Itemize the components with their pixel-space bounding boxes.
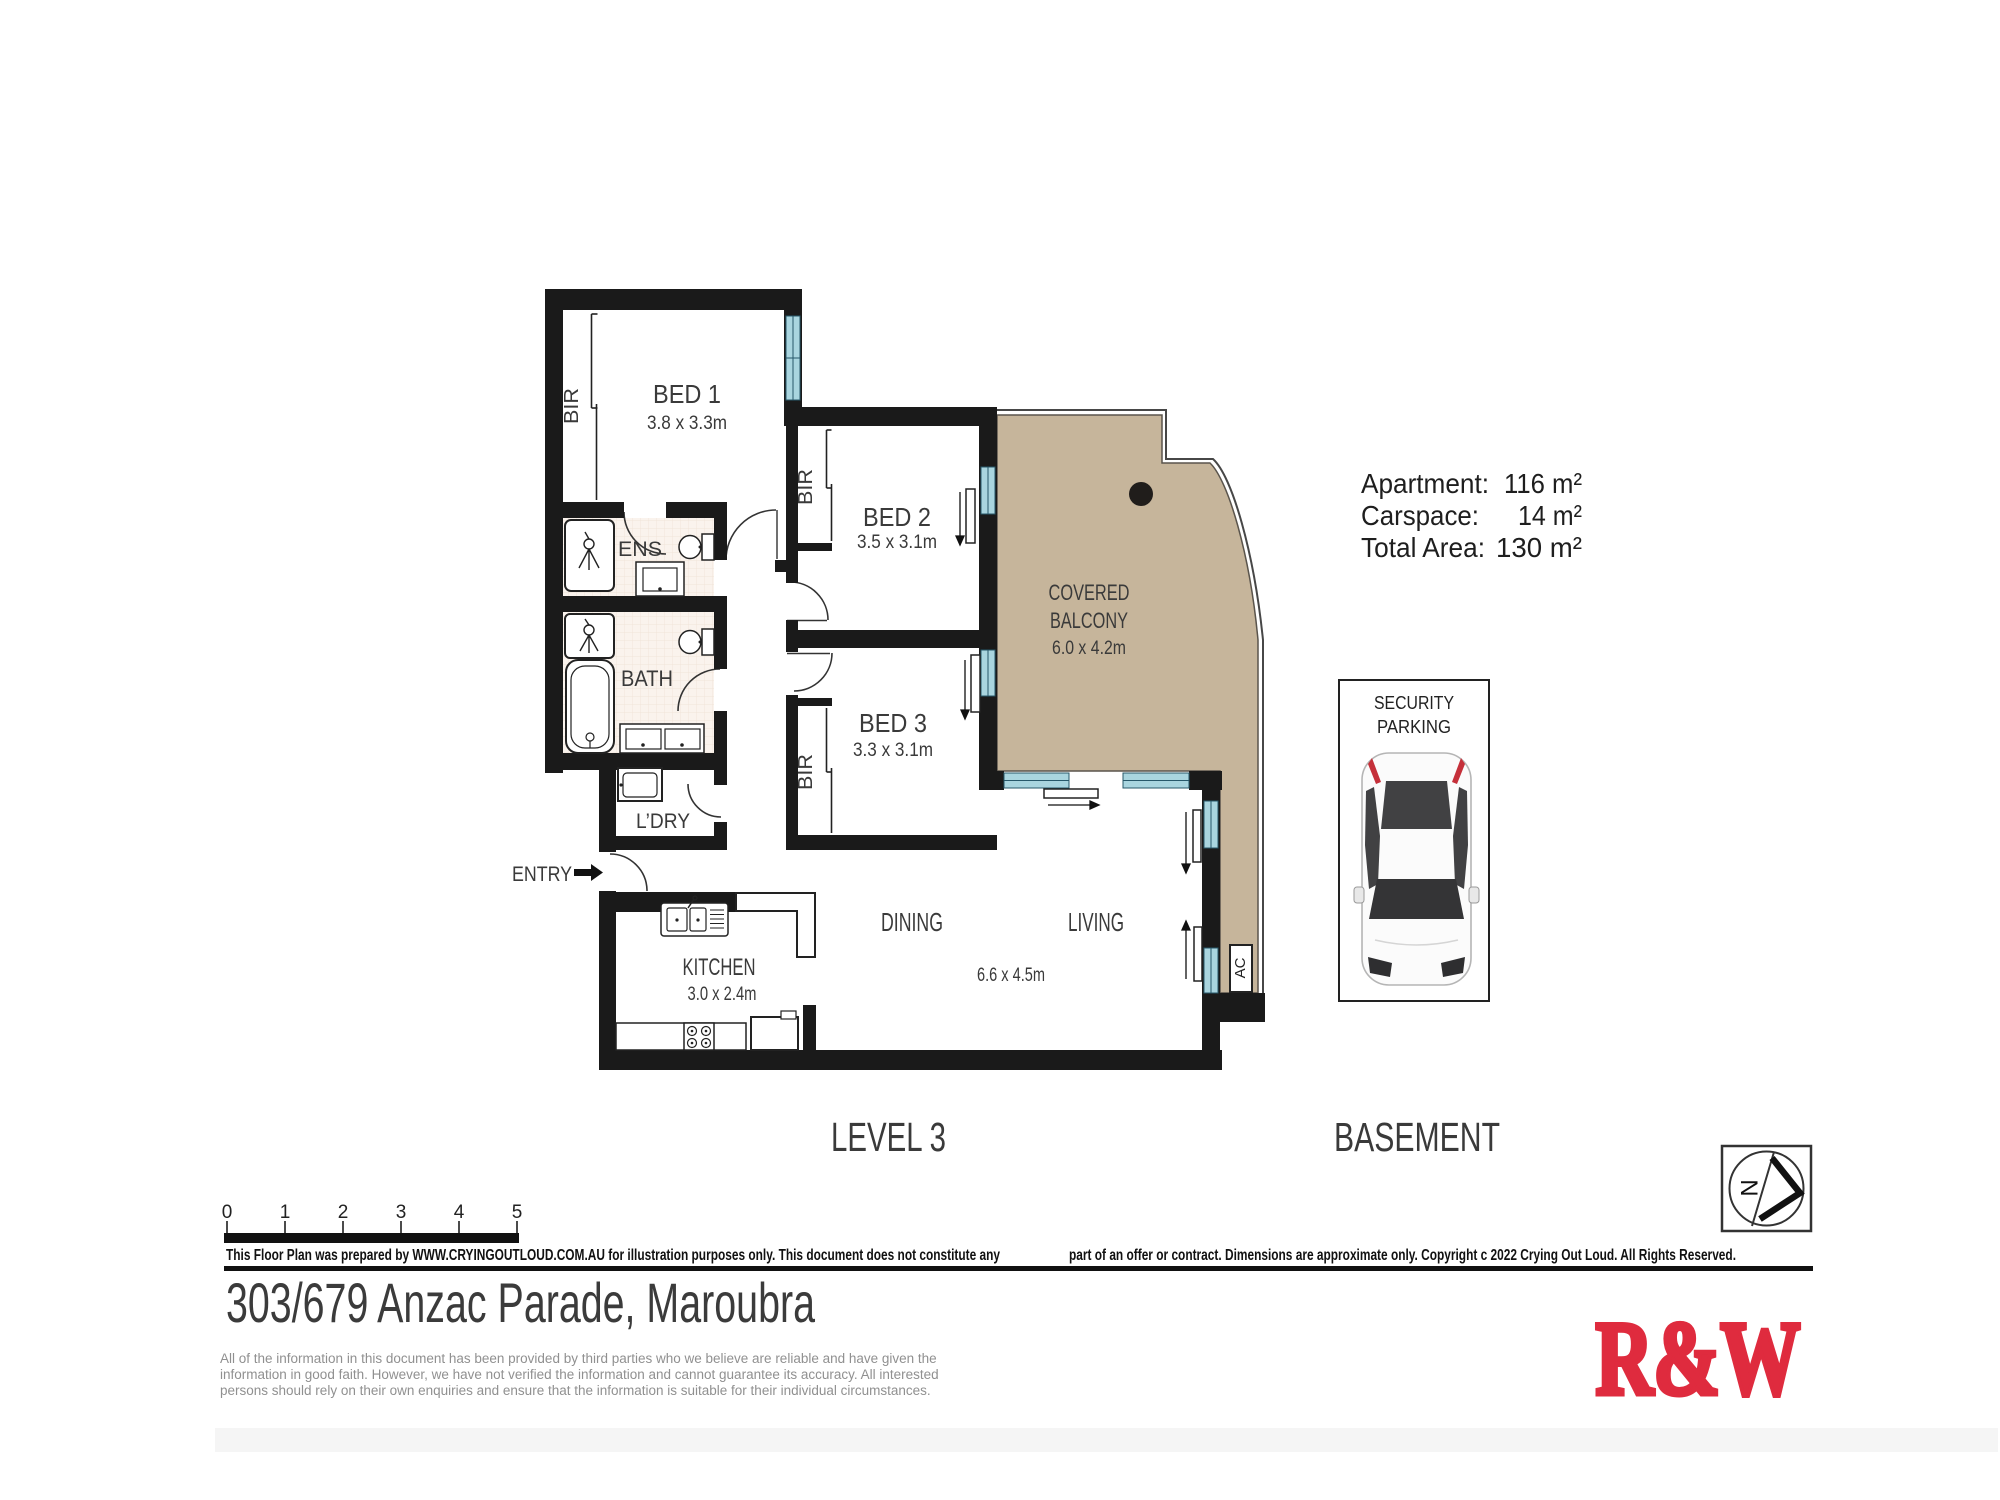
svg-text:BATH: BATH	[621, 666, 673, 691]
svg-text:3.3 x 3.1m: 3.3 x 3.1m	[853, 740, 933, 761]
svg-text:BASEMENT: BASEMENT	[1334, 1114, 1500, 1160]
svg-text:BED 1: BED 1	[653, 379, 721, 409]
svg-text:BALCONY: BALCONY	[1050, 608, 1128, 633]
svg-text:LEVEL 3: LEVEL 3	[831, 1114, 946, 1160]
svg-text:3.8 x 3.3m: 3.8 x 3.3m	[647, 413, 727, 434]
svg-text:130 m²: 130 m²	[1496, 532, 1582, 563]
svg-text:SECURITY: SECURITY	[1374, 693, 1454, 713]
svg-text:part of an offer or contract.: part of an offer or contract. Dimensions…	[1069, 1247, 1736, 1264]
svg-text:BIR: BIR	[561, 388, 583, 424]
svg-text:3: 3	[396, 1202, 407, 1223]
svg-text:6.0 x 4.2m: 6.0 x 4.2m	[1052, 638, 1126, 659]
svg-text:303/679 Anzac Parade, Maroubra: 303/679 Anzac Parade, Maroubra	[226, 1271, 816, 1334]
svg-text:All of the information in this: All of the information in this document …	[220, 1351, 937, 1366]
svg-text:BED 3: BED 3	[859, 708, 927, 738]
svg-text:LIVING: LIVING	[1068, 907, 1124, 937]
svg-text:Carspace:: Carspace:	[1361, 500, 1479, 531]
svg-text:KITCHEN: KITCHEN	[683, 954, 756, 981]
svg-text:116 m²: 116 m²	[1504, 468, 1582, 499]
svg-text:3.5 x 3.1m: 3.5 x 3.1m	[857, 532, 937, 553]
svg-text:14 m²: 14 m²	[1518, 500, 1582, 531]
svg-text:This Floor Plan was prepared b: This Floor Plan was prepared by WWW.CRYI…	[226, 1247, 1000, 1264]
svg-text:N: N	[1736, 1179, 1763, 1196]
svg-text:persons should rely on their o: persons should rely on their own enquiri…	[220, 1383, 931, 1398]
svg-text:PARKING: PARKING	[1377, 717, 1451, 737]
svg-text:2: 2	[338, 1202, 349, 1223]
svg-text:0: 0	[222, 1202, 233, 1223]
svg-text:Total Area:: Total Area:	[1361, 532, 1485, 563]
svg-text:4: 4	[454, 1202, 465, 1223]
svg-text:6.6 x 4.5m: 6.6 x 4.5m	[977, 965, 1045, 986]
svg-text:COVERED: COVERED	[1049, 580, 1130, 605]
svg-text:DINING: DINING	[881, 907, 943, 937]
svg-text:Apartment:: Apartment:	[1361, 468, 1489, 499]
svg-text:R&W: R&W	[1596, 1300, 1801, 1417]
svg-text:L’DRY: L’DRY	[636, 810, 690, 833]
svg-text:1: 1	[280, 1202, 291, 1223]
svg-text:3.0 x 2.4m: 3.0 x 2.4m	[688, 984, 757, 1005]
svg-text:ENS: ENS	[618, 538, 662, 561]
svg-text:BIR: BIR	[795, 754, 817, 790]
svg-text:information in good faith. How: information in good faith. However, we h…	[220, 1367, 939, 1382]
svg-text:BED 2: BED 2	[863, 502, 931, 532]
svg-text:BIR: BIR	[795, 469, 817, 505]
svg-text:AC: AC	[1232, 957, 1249, 978]
svg-text:5: 5	[512, 1202, 523, 1223]
svg-text:ENTRY: ENTRY	[512, 863, 572, 886]
